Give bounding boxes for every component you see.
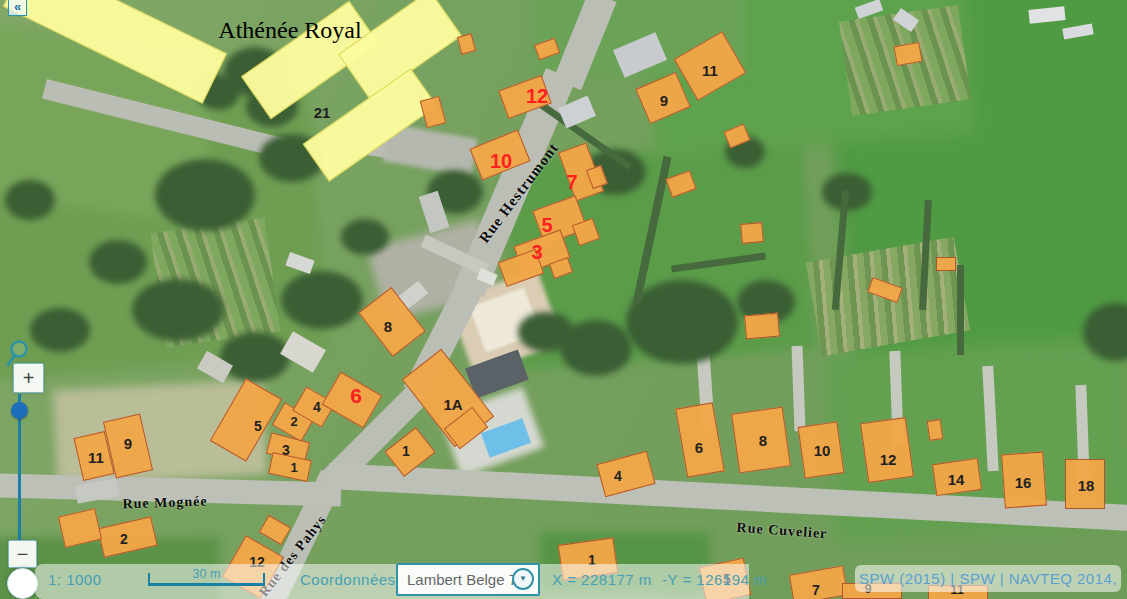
map-canvas[interactable]: 121075362111981A191152431212157468101214… — [0, 0, 1127, 599]
building-number-label: 2 — [120, 532, 128, 546]
building-number-label: 4 — [313, 400, 321, 414]
street-name-label: Rue Cuvelier — [736, 520, 828, 542]
building-number-label: 1A — [443, 397, 462, 412]
building-number-label: 6 — [350, 385, 362, 406]
building-number-label: 9 — [660, 93, 668, 108]
street-name-label: Rue Mognée — [122, 494, 208, 513]
building-number-label: 2 — [290, 415, 297, 428]
building-number-label: 5 — [541, 215, 552, 235]
building-number-label: 6 — [695, 440, 703, 455]
building-number-label: 7 — [566, 172, 577, 192]
building-number-label: 9 — [124, 436, 132, 451]
building-number-label: 8 — [384, 319, 392, 334]
map-label-layer: 121075362111981A191152431212157468101214… — [0, 0, 1127, 599]
collapse-panel-button[interactable]: « — [8, 0, 27, 16]
building-number-label: 3 — [282, 443, 290, 457]
building-number-label: 11 — [88, 450, 104, 465]
building-number-label: 14 — [948, 472, 965, 487]
projection-select[interactable]: Lambert Belge 72 ▼ — [396, 563, 540, 596]
building-number-label: 1 — [402, 444, 410, 458]
building-number-label: 18 — [1078, 478, 1095, 493]
building-number-label: 8 — [759, 433, 767, 448]
zoom-in-button[interactable]: + — [13, 363, 44, 393]
map-attribution: SPW (2015) | SPW | NAVTEQ 2014, SPW — [855, 565, 1121, 592]
building-number-label: 21 — [314, 105, 331, 120]
map-scale-text: 1: 1000 — [48, 572, 102, 587]
building-number-label: 10 — [490, 151, 512, 171]
building-number-label: 3 — [531, 242, 542, 262]
scale-bar-rule — [148, 573, 265, 586]
building-number-label: 12 — [526, 86, 548, 106]
zoom-out-button[interactable]: − — [8, 540, 37, 568]
coordinate-y-readout: -Y = 126194 m — [662, 572, 767, 587]
poi-name-label: Athénée Royal — [218, 17, 361, 44]
building-number-label: 4 — [614, 469, 622, 483]
building-number-label: 11 — [702, 63, 718, 78]
building-number-label: 7 — [812, 583, 820, 597]
building-number-label: 5 — [254, 419, 262, 433]
building-number-label: 10 — [814, 443, 831, 458]
building-number-label: 16 — [1015, 475, 1032, 490]
chevron-down-icon: ▼ — [514, 570, 532, 588]
dropdown-arrow-button[interactable]: ▼ — [512, 568, 534, 590]
zoom-slider-handle[interactable] — [11, 402, 28, 419]
building-number-label: 1 — [290, 461, 297, 474]
projection-value: Lambert Belge 72 — [407, 565, 525, 594]
coordinate-x-readout: X = 228177 m — [552, 572, 652, 587]
scale-bar: 30 m — [148, 570, 265, 586]
compass-button[interactable] — [7, 568, 38, 599]
building-number-label: 12 — [880, 452, 897, 467]
